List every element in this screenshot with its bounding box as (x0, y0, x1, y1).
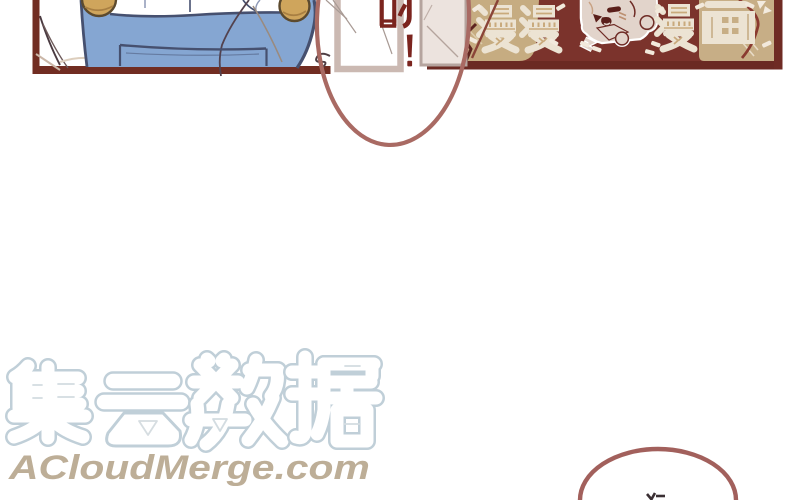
svg-text:ACloudMerge.com: ACloudMerge.com (8, 449, 370, 487)
